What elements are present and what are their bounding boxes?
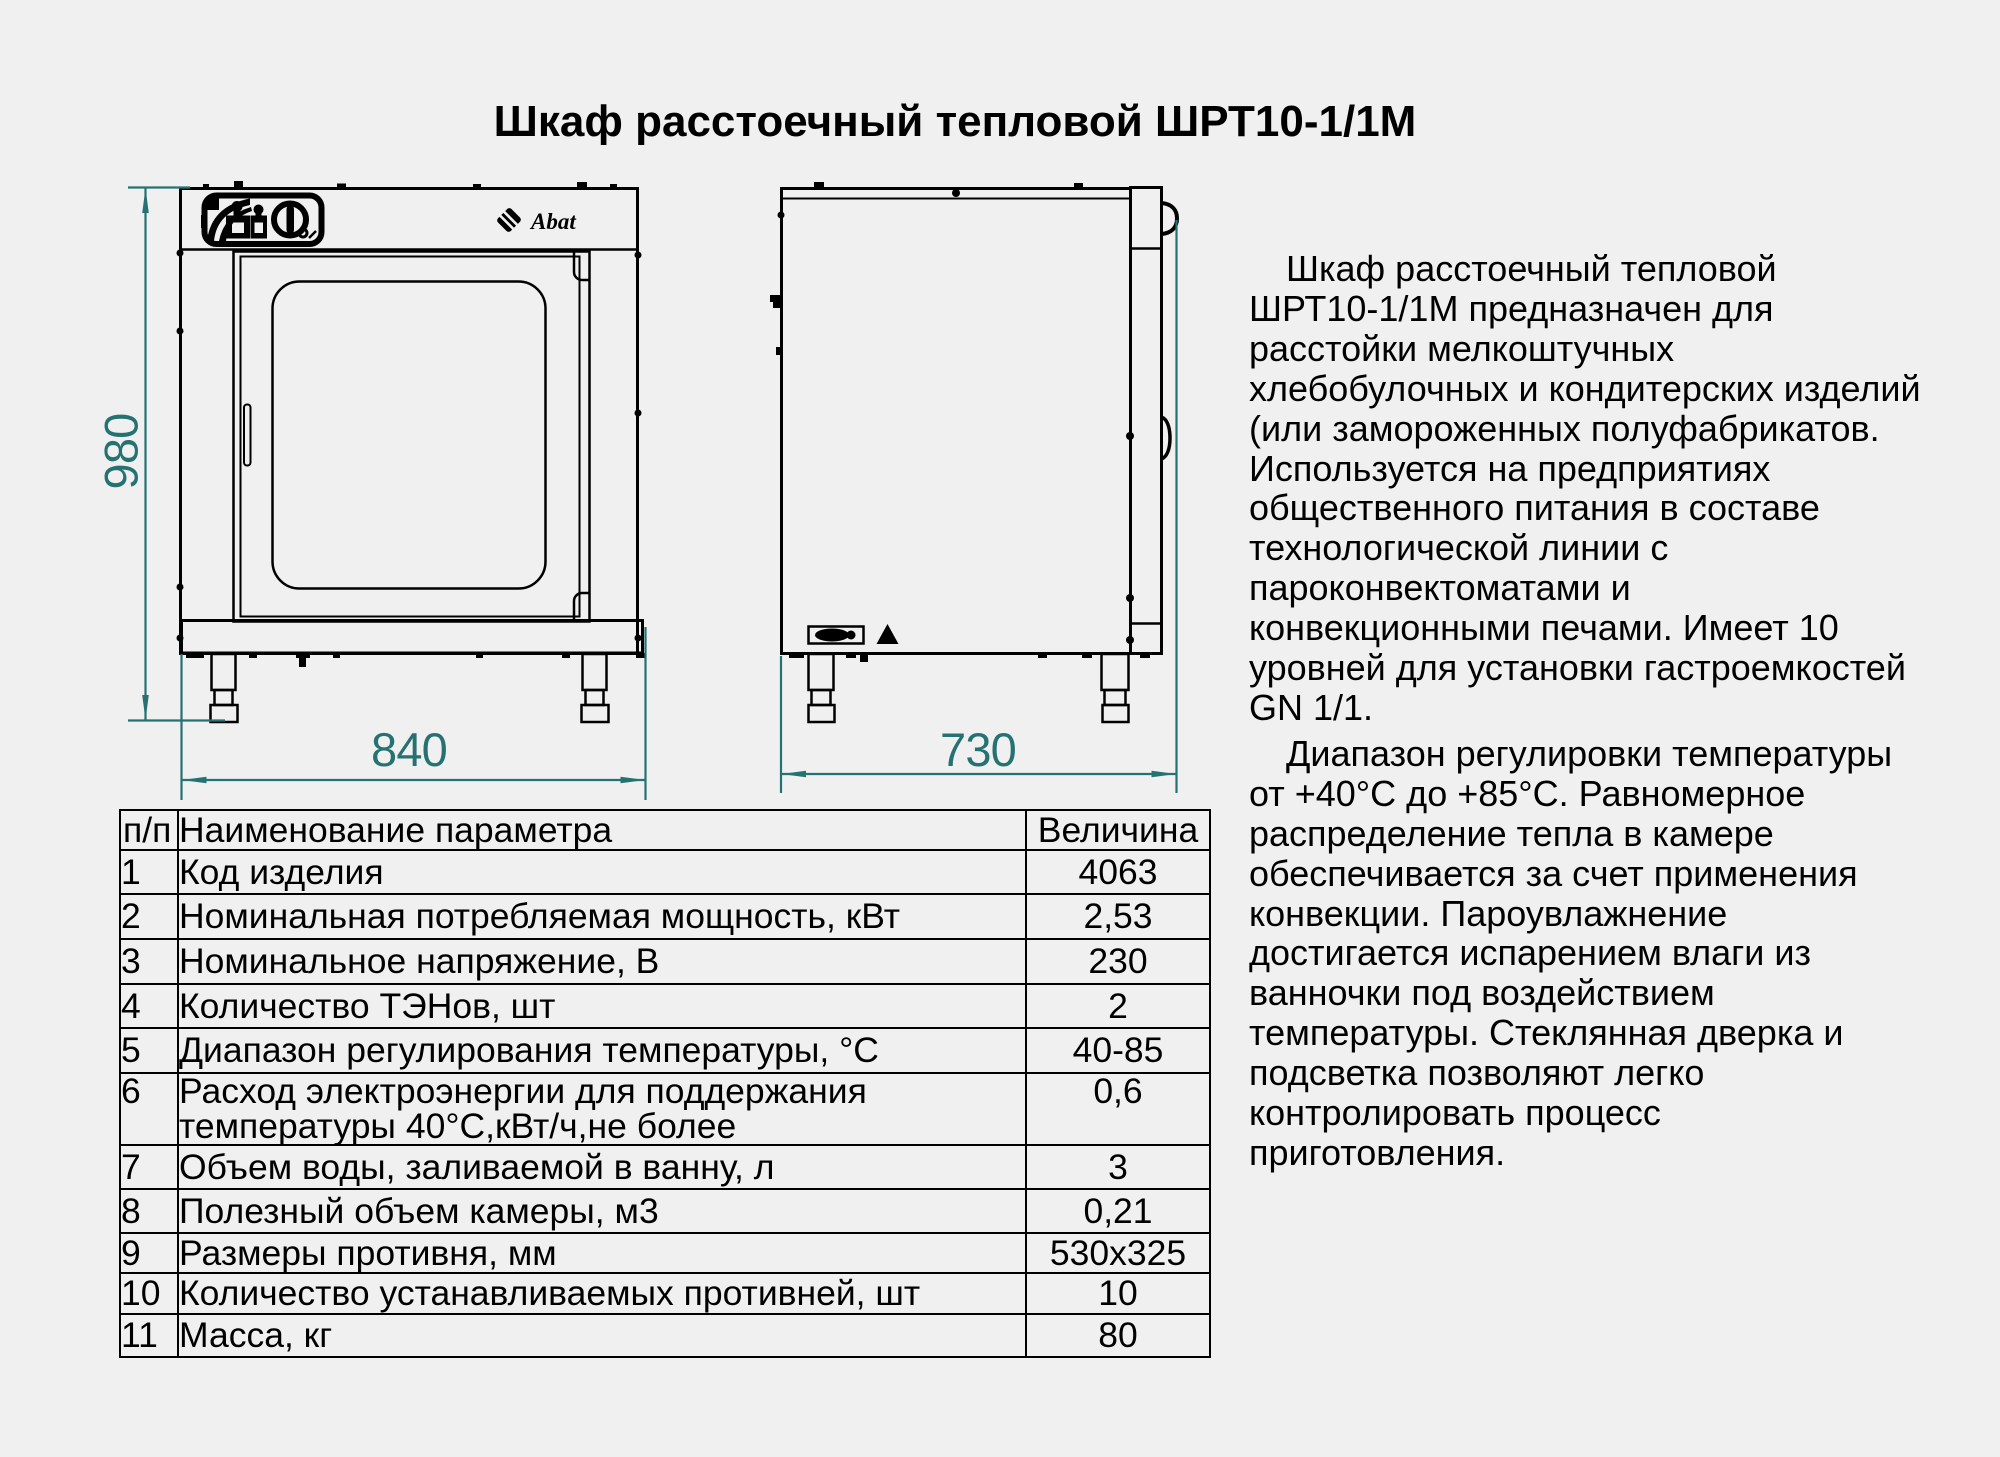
svg-text:840: 840 — [371, 723, 447, 776]
svg-text:980: 980 — [95, 413, 148, 489]
svg-text:730: 730 — [940, 723, 1016, 776]
svg-text:Abat: Abat — [529, 209, 576, 234]
